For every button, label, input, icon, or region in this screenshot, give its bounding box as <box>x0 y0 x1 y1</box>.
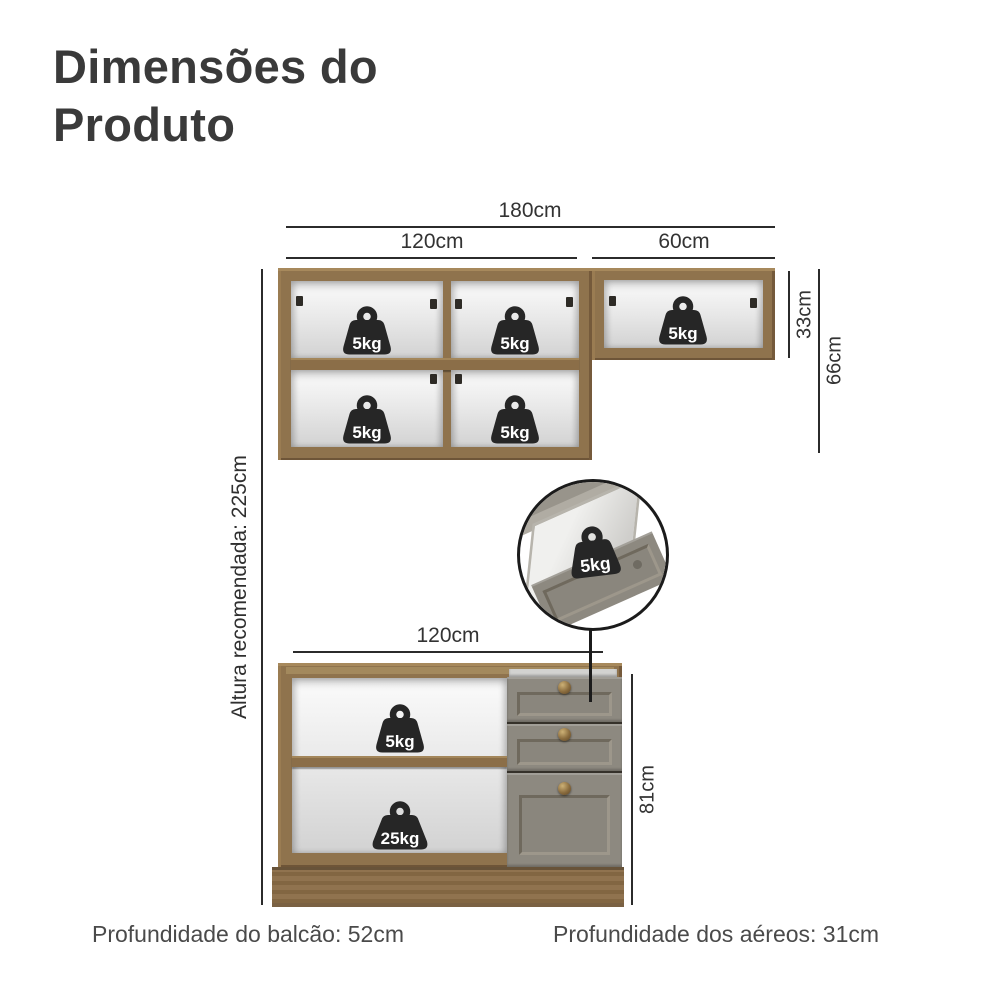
drawer-knob <box>558 681 571 694</box>
lower-middle-shelf <box>292 756 507 767</box>
weight-25kg-icon: 25kg <box>367 801 433 853</box>
weight-label: 5kg <box>500 334 529 353</box>
page-title: Dimensões do Produto <box>53 38 513 154</box>
upper-cabinet-left-module <box>278 268 592 460</box>
drawer-panel <box>519 795 610 855</box>
inset-pointer-line <box>589 627 592 702</box>
weight-5kg-icon: 5kg <box>656 296 710 348</box>
dim-label-66cm: 66cm <box>822 269 848 453</box>
dim-label-120cm-top: 120cm <box>382 230 482 254</box>
drawer-1 <box>507 677 622 722</box>
dim-line-81cm <box>631 674 633 905</box>
weight-label: 5kg <box>579 553 612 577</box>
hinge-icon <box>430 374 437 384</box>
weight-label: 5kg <box>668 324 697 343</box>
drawer-detail-inset: 5kg <box>517 479 669 631</box>
hinge-icon <box>566 297 573 307</box>
drawer-2 <box>507 724 622 771</box>
dim-line-60cm <box>592 257 775 259</box>
hinge-icon <box>455 299 462 309</box>
weight-5kg-icon: 5kg <box>488 306 542 358</box>
dim-label-81cm: 81cm <box>635 674 661 905</box>
drawer-box-rim <box>509 669 617 677</box>
dim-line-120cm-bottom <box>293 651 603 653</box>
dim-line-120cm-top <box>286 257 577 259</box>
lower-cabinet-body <box>278 663 622 867</box>
product-dimensions-diagram: Dimensões do Produto 180cm 120cm 60cm 33… <box>0 0 1000 1000</box>
dim-label-recommended-height: Altura recomendada: 225cm <box>224 269 256 905</box>
dim-label-60cm: 60cm <box>634 230 734 254</box>
weight-label: 5kg <box>352 423 381 442</box>
drawer-panel <box>517 692 612 716</box>
weight-label: 5kg <box>352 334 381 353</box>
dim-line-66cm <box>818 269 820 453</box>
hinge-icon <box>455 374 462 384</box>
weight-5kg-icon: 5kg <box>373 704 427 756</box>
drawer-panel <box>517 739 612 765</box>
dim-label-120cm-bottom: 120cm <box>398 624 498 648</box>
weight-5kg-icon: 5kg <box>563 523 625 583</box>
dim-label-33cm: 33cm <box>792 271 818 358</box>
drawer-knob <box>558 782 571 795</box>
hinge-icon <box>296 296 303 306</box>
hinge-icon <box>750 298 757 308</box>
counter-depth-note: Profundidade do balcão: 52cm <box>92 921 404 948</box>
drawer-stack <box>507 677 622 867</box>
hinge-icon <box>430 299 437 309</box>
drawer-knob <box>558 728 571 741</box>
dim-label-180cm: 180cm <box>480 199 580 223</box>
dim-line-recommended-height <box>261 269 263 905</box>
weight-label: 5kg <box>385 732 414 751</box>
aerial-depth-note: Profundidade dos aéreos: 31cm <box>553 921 879 948</box>
dim-line-33cm <box>788 271 790 358</box>
dim-line-180cm <box>286 226 775 228</box>
upper-middle-shelf <box>291 358 579 370</box>
cabinet-plinth <box>272 867 624 907</box>
weight-label: 5kg <box>500 423 529 442</box>
weight-label: 25kg <box>381 829 420 848</box>
hinge-icon <box>609 296 616 306</box>
weight-5kg-icon: 5kg <box>340 395 394 447</box>
weight-5kg-icon: 5kg <box>340 306 394 358</box>
drawer-3 <box>507 773 622 867</box>
weight-5kg-icon: 5kg <box>488 395 542 447</box>
